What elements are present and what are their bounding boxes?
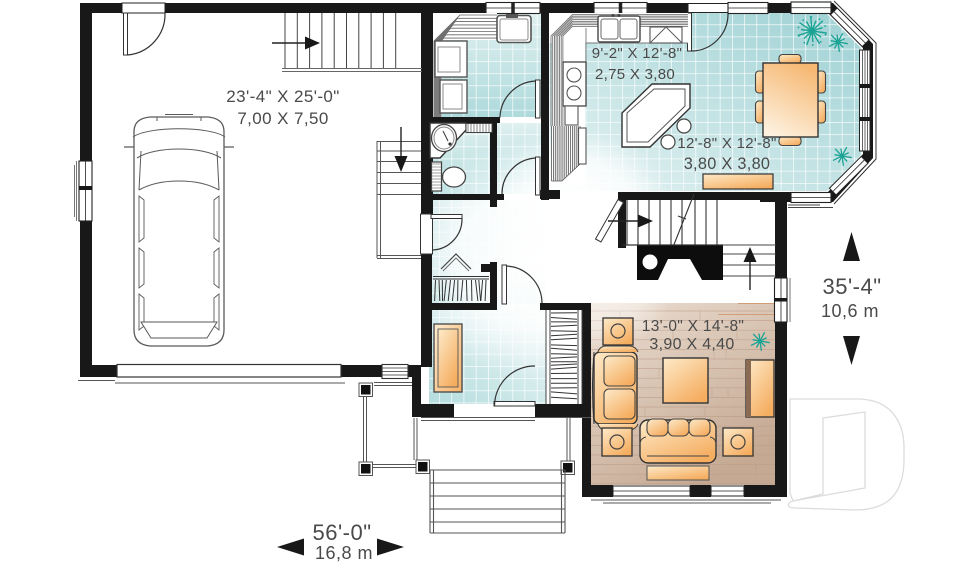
svg-text:13'-0" X 14'-8": 13'-0" X 14'-8" (642, 318, 744, 335)
svg-text:9'-2" X 12'-8": 9'-2" X 12'-8" (592, 45, 683, 62)
svg-text:16,8 m: 16,8 m (315, 543, 373, 563)
svg-text:3,80 X 3,80: 3,80 X 3,80 (684, 155, 771, 173)
svg-text:12'-8" X 12'-8": 12'-8" X 12'-8" (677, 135, 776, 152)
svg-text:35'-4": 35'-4" (822, 274, 881, 299)
svg-text:23'-4" X 25'-0": 23'-4" X 25'-0" (226, 87, 339, 106)
svg-text:56'-0": 56'-0" (312, 520, 371, 545)
svg-text:3,90 X 4,40: 3,90 X 4,40 (649, 336, 734, 353)
svg-text:10,6 m: 10,6 m (821, 301, 879, 321)
svg-text:2,75 X 3,80: 2,75 X 3,80 (595, 66, 675, 83)
svg-text:7,00 X 7,50: 7,00 X 7,50 (237, 109, 328, 128)
